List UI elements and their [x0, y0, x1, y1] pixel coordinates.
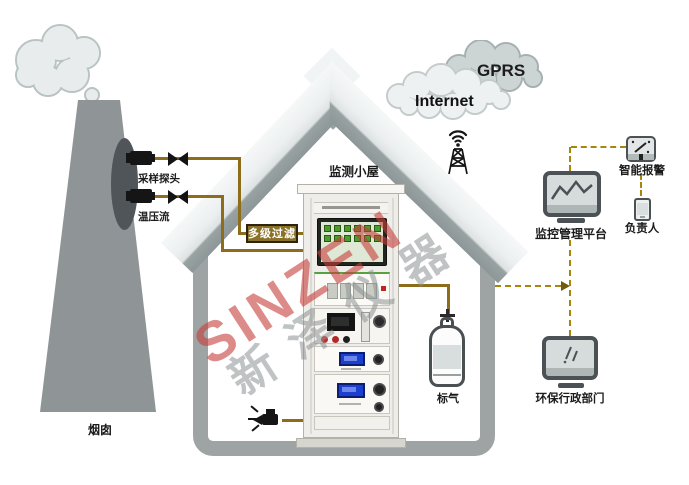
pipe-exhaust	[282, 419, 304, 422]
red-button	[321, 336, 328, 343]
monitor-stand	[558, 383, 584, 388]
cabinet-base	[296, 438, 406, 448]
flow-module	[314, 272, 390, 306]
smart-alarm-label: 智能报警	[604, 162, 680, 178]
multistage-filter: 多级过滤	[246, 224, 298, 243]
knob	[373, 354, 384, 365]
epa-monitor-icon	[542, 336, 598, 380]
analyzer-knob	[373, 315, 386, 328]
pipe-sampling-h	[148, 157, 241, 160]
trend-line	[547, 175, 597, 205]
pipe-calgas-h	[398, 284, 450, 287]
red-button	[332, 336, 339, 343]
indicator-led	[381, 286, 386, 291]
platform-monitor-icon	[543, 171, 601, 217]
sensor-module-2	[314, 374, 390, 414]
report-glyph	[546, 340, 594, 368]
stack-label: 烟囱	[72, 421, 128, 438]
pipe-tpf-to-cabinet	[221, 249, 306, 252]
analyzer-display	[327, 313, 355, 331]
link-platform-up	[569, 147, 571, 171]
gprs-label: GPRS	[477, 61, 525, 80]
cabinet-title-text	[322, 206, 380, 209]
cabinet-rail	[310, 198, 312, 434]
network-clouds: GPRS Internet	[381, 40, 553, 132]
link-cabin-to-network	[495, 285, 561, 287]
internet-label: Internet	[415, 93, 474, 110]
smart-alarm-icon	[626, 136, 656, 162]
person-label: 负责人	[608, 220, 676, 236]
valve-icon	[168, 152, 188, 167]
sensor-module-1	[314, 346, 390, 372]
analyzer-module	[314, 308, 390, 344]
sampling-probe-icon	[130, 151, 152, 165]
knob	[373, 383, 386, 396]
phone-icon	[634, 198, 651, 221]
link-to-alarm	[571, 146, 626, 148]
monitor-stand	[557, 218, 585, 223]
cabinet-rail	[392, 198, 394, 434]
plc-screen-buttons	[321, 222, 383, 262]
plc-touchscreen	[317, 218, 387, 266]
knob	[374, 402, 384, 412]
lcd-display	[337, 383, 365, 398]
blank-panel	[314, 416, 390, 430]
cabin-label: 监测小屋	[317, 161, 391, 180]
exhaust-vent-icon	[250, 404, 284, 434]
pipe-sampling-v	[238, 157, 241, 235]
epa-label: 环保行政部门	[524, 390, 616, 406]
smokestack	[38, 98, 158, 414]
black-button	[343, 336, 350, 343]
link-platform-to-epa	[569, 240, 571, 336]
cems-diagram: 烟囱 采样探头 温压流 多级过滤 监测小屋	[0, 0, 689, 485]
pipe-tpf-v	[221, 195, 224, 252]
analyzer-cabinet	[303, 193, 399, 438]
tpf-probe-icon	[130, 189, 152, 203]
calibration-gas-cylinder	[429, 325, 465, 387]
rotameter	[361, 312, 370, 342]
valve-icon	[168, 190, 188, 205]
lcd-display	[339, 352, 365, 366]
sampling-probe-label: 采样探头	[138, 171, 198, 186]
